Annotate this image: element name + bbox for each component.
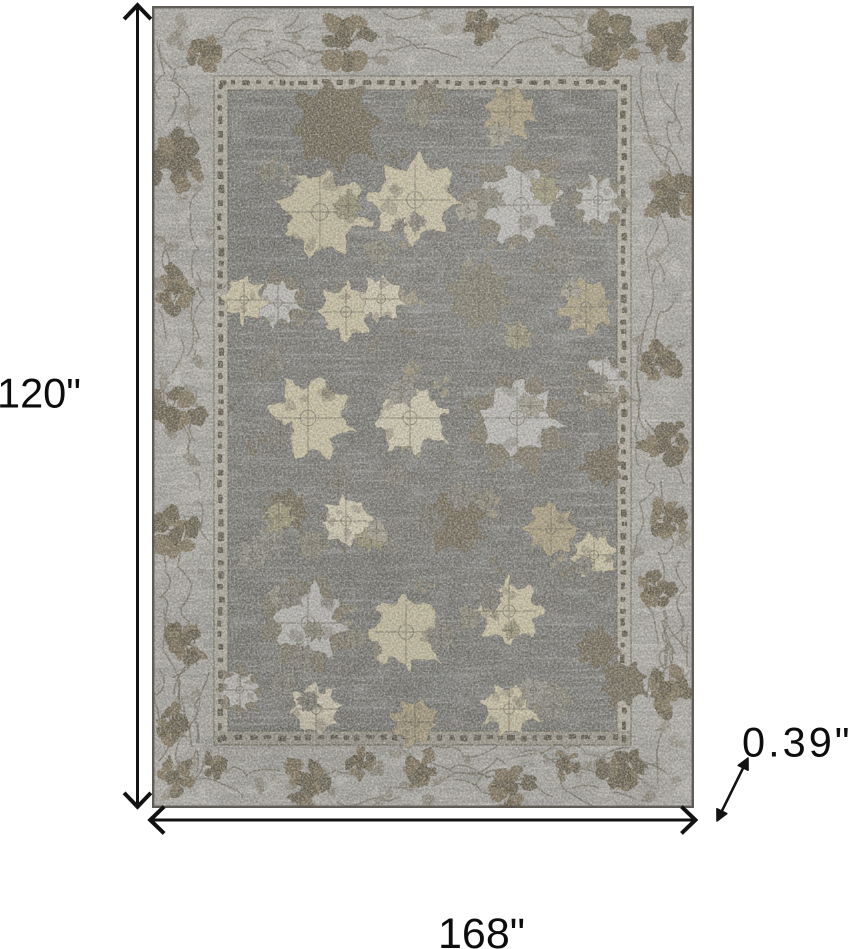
- svg-text:0.39": 0.39": [742, 719, 850, 766]
- svg-text:120": 120": [0, 370, 81, 417]
- svg-text:168": 168": [438, 910, 525, 949]
